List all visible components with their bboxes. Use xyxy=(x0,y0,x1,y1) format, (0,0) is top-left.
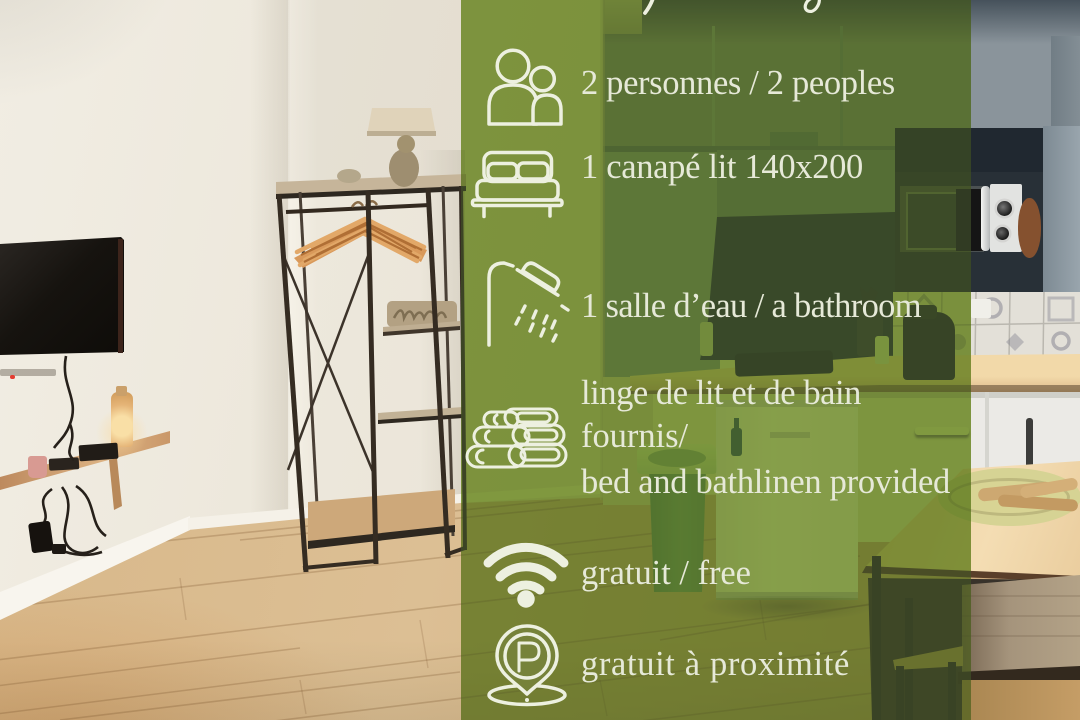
svg-text:1 salle d’eau / a bathroom: 1 salle d’eau / a bathroom xyxy=(581,287,922,325)
svg-text:2 personnes / 2 peoples: 2 personnes / 2 peoples xyxy=(581,64,895,102)
svg-text:linge de lit et de bain: linge de lit et de bain xyxy=(581,374,861,412)
svg-text:gratuit à proximité: gratuit à proximité xyxy=(581,645,850,683)
svg-text:bed and bathlinen provided: bed and bathlinen provided xyxy=(581,463,950,501)
svg-text:gratuit / free: gratuit / free xyxy=(581,554,751,592)
svg-text:fournis/: fournis/ xyxy=(581,417,688,455)
svg-text:1 canapé lit 140x200: 1 canapé lit 140x200 xyxy=(581,148,863,186)
